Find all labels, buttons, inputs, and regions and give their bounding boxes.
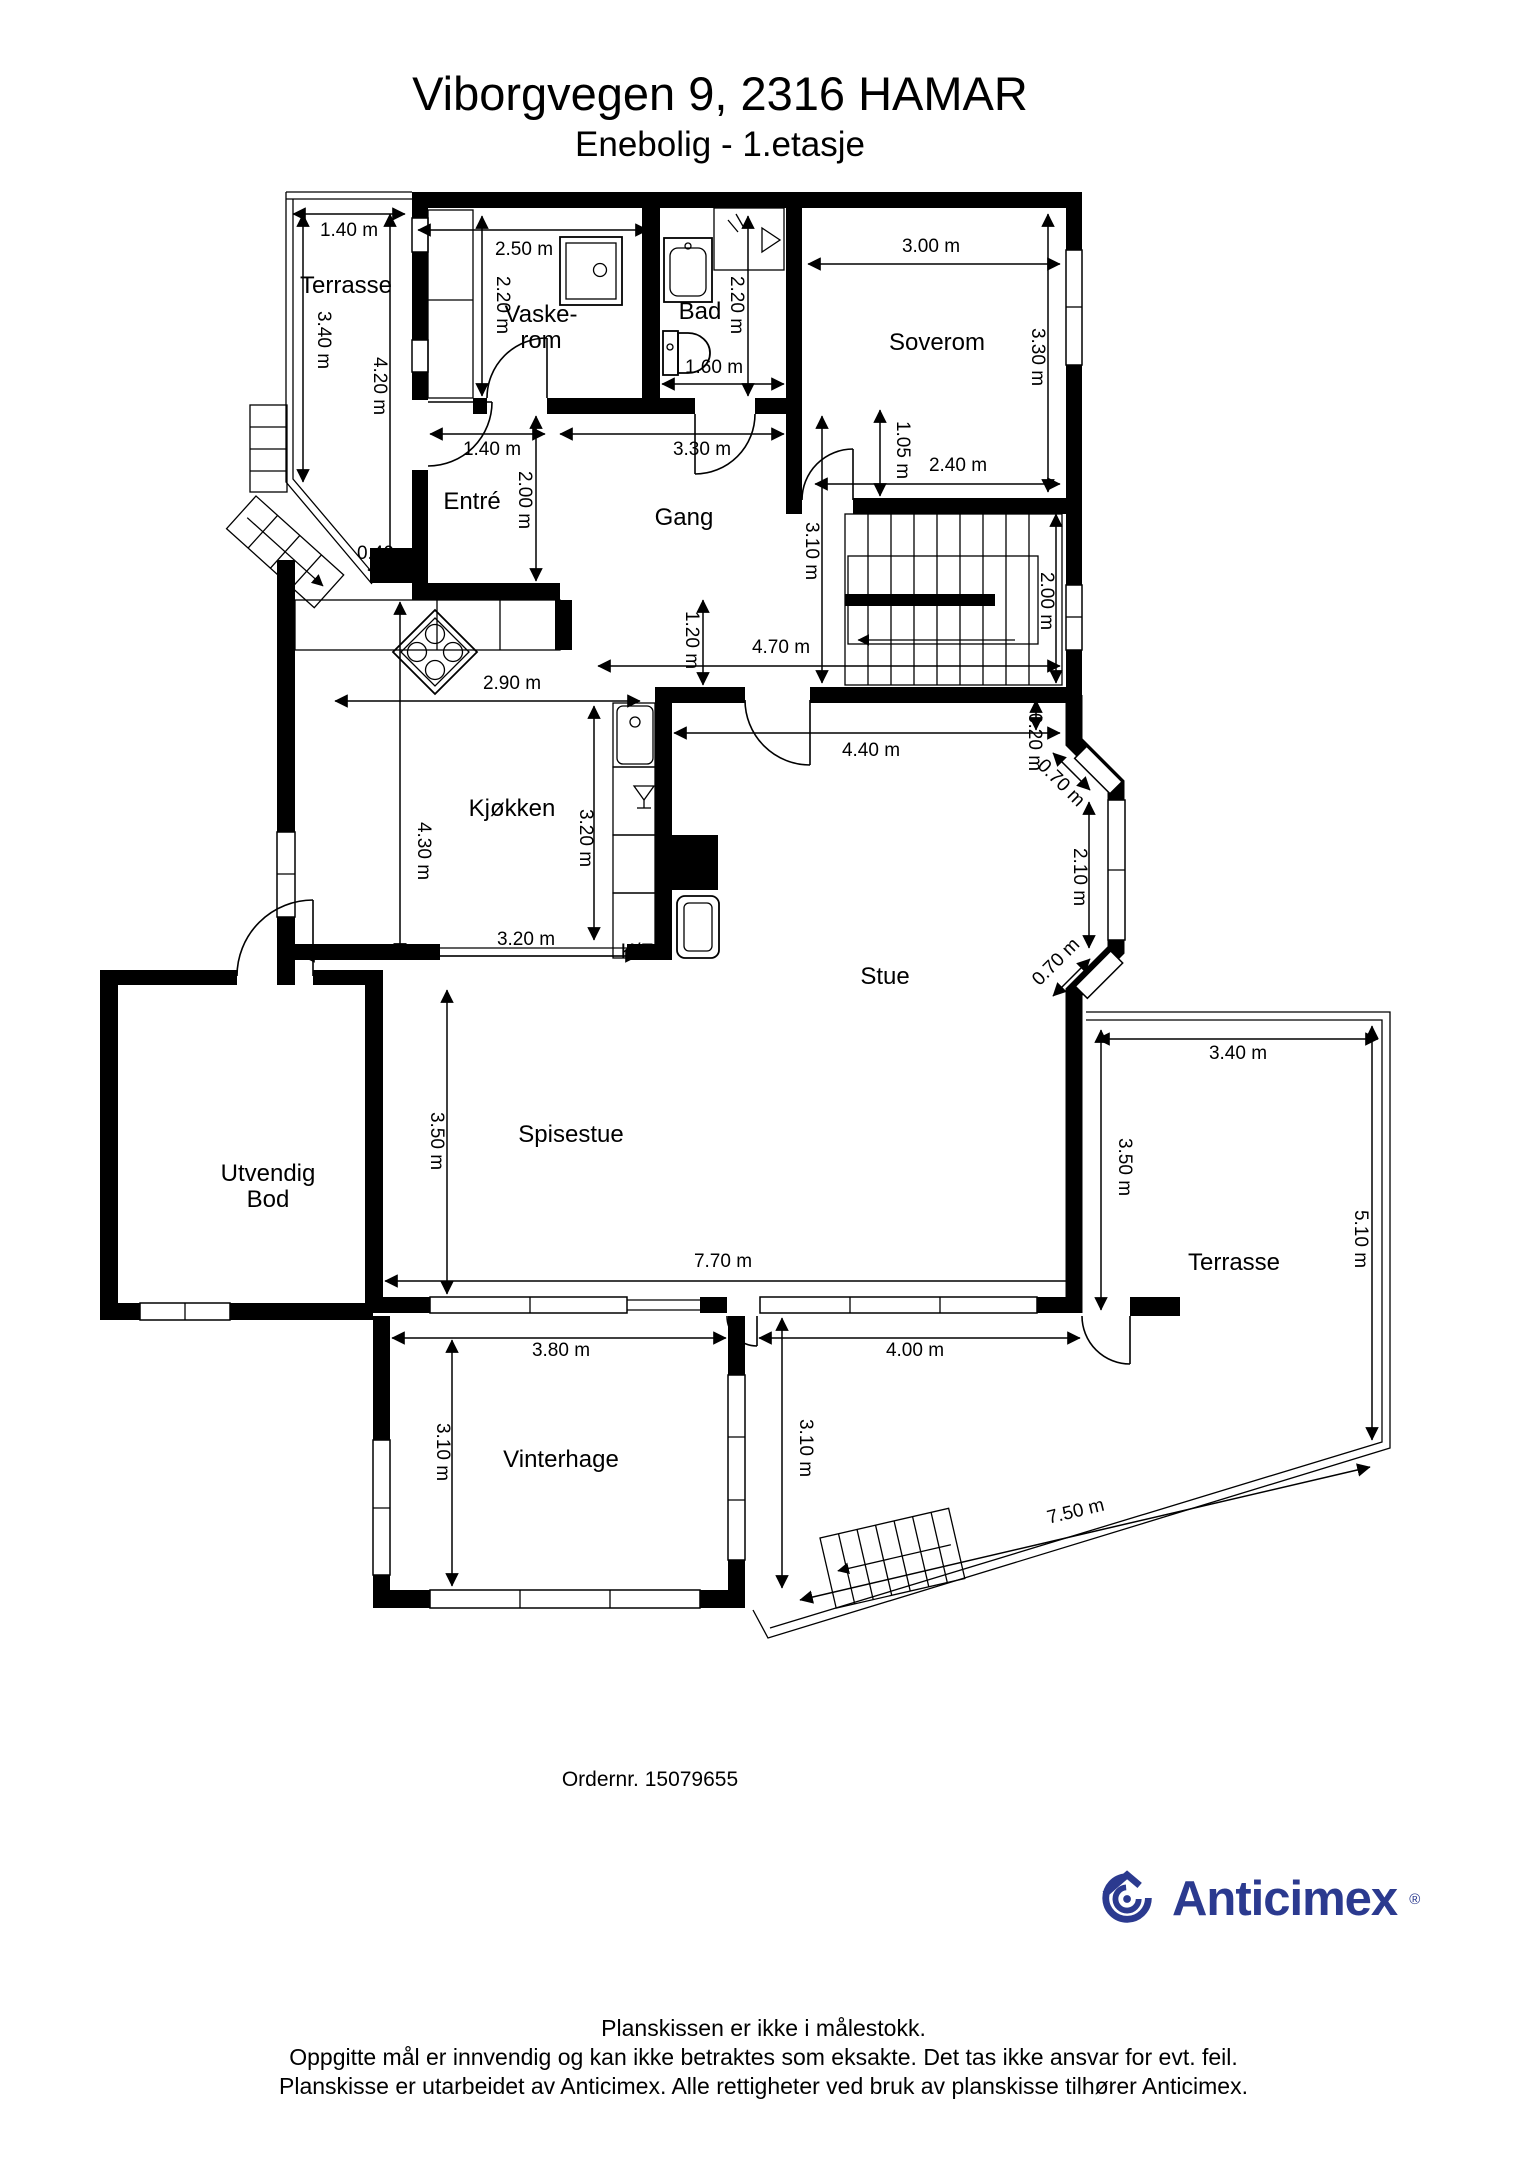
room-label-terrasse-right: Terrasse [1188,1249,1280,1276]
plan-shape: 1.20 m [681,611,702,669]
room-label-gang: Gang [655,504,714,531]
plan-shape: 3.20 m [575,809,596,867]
dimension-label: 3.20 m [497,929,555,950]
plan-shape: 2.40 m [929,455,987,476]
room-label-vinterhage: Vinterhage [503,1446,619,1473]
plan-shape: 2.10 m [1069,848,1090,906]
icon-part [401,618,469,686]
terrace-left-outline [286,192,412,584]
icon-part [663,331,678,375]
disclaimer: Planskissen er ikke i målestokk. Oppgitt… [0,2014,1527,2101]
plan-shape: 2.50 m [495,239,553,260]
dimension-label: 3.00 m [902,236,960,257]
dimension-label: 4.40 m [842,740,900,761]
door-swing [802,449,853,500]
dimension-label: 1.60 m [685,357,743,378]
dimension-label: 2.00 m [1036,572,1057,630]
wall-segment [755,398,786,414]
icon-part [762,228,780,252]
icon-part [667,344,673,350]
wall-segment [642,192,660,414]
dimension-label: 2.20 m [492,276,513,334]
icon-part [728,220,738,232]
window [430,1297,627,1313]
room-label-stue: Stue [860,963,909,990]
wall-segment [810,687,1082,703]
stairs-icon [227,405,1062,1608]
plan-shape: 2.20 m [492,276,513,334]
room-label-terrasse-left: Terrasse [300,272,392,299]
wall-segment [313,970,365,985]
bathroom-sink-icon [664,238,712,302]
order-number: Ordernr. 15079655 [0,1768,1300,1792]
room-label-soverom: Soverom [889,329,985,356]
entry-closet [428,210,473,398]
plan-shape: 3.10 m [801,522,822,580]
disclaimer-line-2: Oppgitte mål er innvendig og kan ikke be… [0,2043,1527,2072]
plan-shape: 4.00 m [886,1340,944,1361]
icon-part [684,903,712,951]
dimension-label: 2.40 m [929,455,987,476]
counter-part [613,703,655,767]
plan-shape: 4.30 m [413,822,434,880]
wall-segment [728,1316,745,1375]
wall-segment [853,498,1066,514]
plan-shape: 1.60 m [685,357,743,378]
wall-segment [700,1297,727,1313]
cooktop-icon [393,610,477,694]
icon-part [426,625,445,644]
icon-part [426,661,445,680]
closet-part [428,210,473,398]
stair-part [845,594,995,606]
dimension-label: 1.40 m [463,439,521,460]
plan-shape: 1.40 m [320,220,378,241]
plan-shape: Stue [860,963,909,990]
icon-part [408,643,427,662]
wall-segment [786,192,802,514]
window [1075,746,1122,793]
plan-shape: 5.10 m [1350,1210,1371,1268]
wall-segment [100,970,237,985]
plan-shape: 1.05 m [892,421,913,479]
icon-part [393,610,477,694]
icon-part [714,208,784,270]
fixture-label-fridge-freezer: K/F [621,940,654,963]
wall-segment [1130,1297,1180,1316]
icon-part [736,214,744,228]
window [728,1375,745,1560]
wall-segment [672,687,745,703]
disclaimer-line-3: Planskisse er utarbeidet av Anticimex. A… [0,2072,1527,2101]
plan-shape: 3.50 m [426,1112,447,1170]
window [412,340,428,372]
plan-shape: Vinterhage [503,1446,619,1473]
dimension-label: 5.10 m [1350,1210,1371,1268]
disclaimer-line-1: Planskissen er ikke i målestokk. [0,2014,1527,2043]
dimension-labels: 1.40 m3.40 m4.20 m2.50 m2.20 m2.20 m1.60… [313,220,1371,1529]
washing-machine-icon [560,237,622,305]
plan-shape: 3.80 m [532,1340,590,1361]
floorplan-drawing: TerrasseVaske-romBadSoveromEntréGangKjøk… [0,0,1527,2160]
plan-shape: Kjøkken [469,795,556,822]
plan-shape: 7.50 m [1045,1495,1106,1529]
dimension-label: 3.80 m [532,1340,590,1361]
stair-part [838,1545,951,1571]
wall-segment [365,1297,430,1313]
plan-shape: 7.70 m [694,1251,752,1272]
dimension-label: 3.30 m [1027,328,1048,386]
window [1075,746,1122,793]
wall-segment [412,372,428,400]
wall-segment [412,252,428,340]
plan-shape: 2.00 m [514,471,535,529]
plan-shape: 2.00 m [1036,572,1057,630]
plan-shape: 3.00 m [902,236,960,257]
wall-segment [665,835,718,890]
room-label-spisestue: Spisestue [518,1121,623,1148]
dimension-label: 3.30 m [673,439,731,460]
plan-shape: Gang [655,504,714,531]
registered-mark: ® [1409,1891,1420,1908]
wall-segment [412,192,1082,208]
icon-part [634,786,654,800]
window [760,1297,1037,1313]
window [430,1590,700,1608]
plan-shape: 3.10 m [432,1423,453,1481]
dimension-label: 4.20 m [369,357,390,415]
dimension-label: 1.05 m [892,421,913,479]
plan-shape: Bad [679,298,722,325]
plan-shape: Terrasse [1188,1249,1280,1276]
plan-shape: Vaske- [505,301,578,328]
wall-segment [373,1590,430,1608]
wall-segment [1066,365,1082,510]
wall-segment [412,208,428,218]
plan-shape: 3.30 m [1027,328,1048,386]
plan-shape: Terrasse [300,272,392,299]
icon-part [560,237,622,305]
dimension-label: 0.40 m [357,543,415,564]
terrace-boundary [293,199,376,577]
kitchen-sink-icon [617,706,653,764]
dimension-label: 3.40 m [1209,1043,1267,1064]
dimension-label: 3.50 m [426,1112,447,1170]
plan-shape: 3.10 m [795,1419,816,1477]
fixture-labels: K/F [621,940,654,963]
fireplace-icon [677,896,719,958]
window [412,218,428,252]
icon-part [594,264,607,277]
plan-shape: 3.30 m [673,439,731,460]
dimension-label: 2.20 m [726,276,747,334]
plan-shape [1123,1895,1131,1903]
wall-segment [100,1303,140,1320]
icon-part [617,706,653,764]
plan-shape: 2.90 m [483,673,541,694]
dimension-label: 3.50 m [1114,1138,1135,1196]
wall-segment [277,560,295,832]
dimension-label: 3.10 m [795,1419,816,1477]
windows [140,218,1125,1608]
dimension-label: 7.50 m [1045,1495,1106,1529]
door-swing [237,900,313,976]
stair-part [820,1508,965,1608]
wall-segment [473,398,487,414]
terrace-boundary [286,192,372,584]
dimension-label: 1.40 m [320,220,378,241]
plan-shape: Soverom [889,329,985,356]
wall-segment [365,970,383,1313]
wall-segment [1066,510,1082,585]
dimension-label: 2.50 m [495,239,553,260]
dimension-label: 3.20 m [575,809,596,867]
door-swing [1082,1316,1130,1364]
dimension-label: 3.40 m [313,311,334,369]
plan-shape: 3.20 m [497,929,555,950]
plan-shape: Utvendig [221,1160,316,1187]
dimension-label: 3.10 m [432,1423,453,1481]
wall-segment [277,944,440,960]
wall-segment [100,985,118,1320]
room-label-utvendig-bod: UtvendigBod [221,1160,316,1213]
room-label-entre: Entré [443,488,500,515]
dimension-label: 4.00 m [886,1340,944,1361]
icon-part [630,717,640,727]
plan-shape: 0.40 m [357,543,415,564]
dimension-label: 2.10 m [1069,848,1090,906]
dimension-label: 4.70 m [752,637,810,658]
icon-part [444,643,463,662]
dishwasher-icon [634,786,654,808]
plan-shape: K/F [621,940,654,963]
wall-segment [728,1560,745,1608]
icon-part [677,896,719,958]
dimension-label: 2.00 m [514,471,535,529]
wall-segment [230,1303,373,1320]
plan-shape: 3.40 m [313,311,334,369]
anticimex-logo-icon [1098,1868,1160,1930]
anticimex-wordmark: Anticimex [1172,1871,1397,1927]
dimension-label: 7.70 m [694,1251,752,1272]
dimension-line [800,1467,1370,1600]
floorplan-page: Viborgvegen 9, 2316 HAMAR Enebolig - 1.e… [0,0,1527,2160]
plan-shape: Spisestue [518,1121,623,1148]
plan-shape: 1.40 m [463,439,521,460]
wall-segment [655,687,672,960]
plan-shape: 4.20 m [369,357,390,415]
wall-segment [547,398,695,414]
wall-segment [412,470,428,583]
wall-segment [1066,208,1082,250]
plan-shape: 3.50 m [1114,1138,1135,1196]
dimension-lines [293,214,1378,1600]
plan-shape: rom [520,327,561,354]
wall-segment [555,600,572,650]
anticimex-logo: Anticimex® [1098,1868,1420,1930]
dimension-label: 3.10 m [801,522,822,580]
counter-part [613,767,655,835]
dimension-label: 2.90 m [483,673,541,694]
plan-shape: 2.20 m [726,276,747,334]
counter-part [613,835,655,893]
dimension-label: 4.30 m [413,822,434,880]
shower-icon [714,208,784,270]
plan-shape: Entré [443,488,500,515]
plan-shape: 3.40 m [1209,1043,1267,1064]
wall-segment [373,1316,390,1440]
plan-shape: Bod [247,1186,290,1213]
room-label-bad: Bad [679,298,722,325]
plan-shape: 4.70 m [752,637,810,658]
dimension-label: 1.20 m [681,611,702,669]
plan-shape: 4.40 m [842,740,900,761]
room-label-kjokken: Kjøkken [469,795,556,822]
icon-part [670,248,706,296]
wall-segment [412,583,560,600]
icon-part [566,243,616,299]
